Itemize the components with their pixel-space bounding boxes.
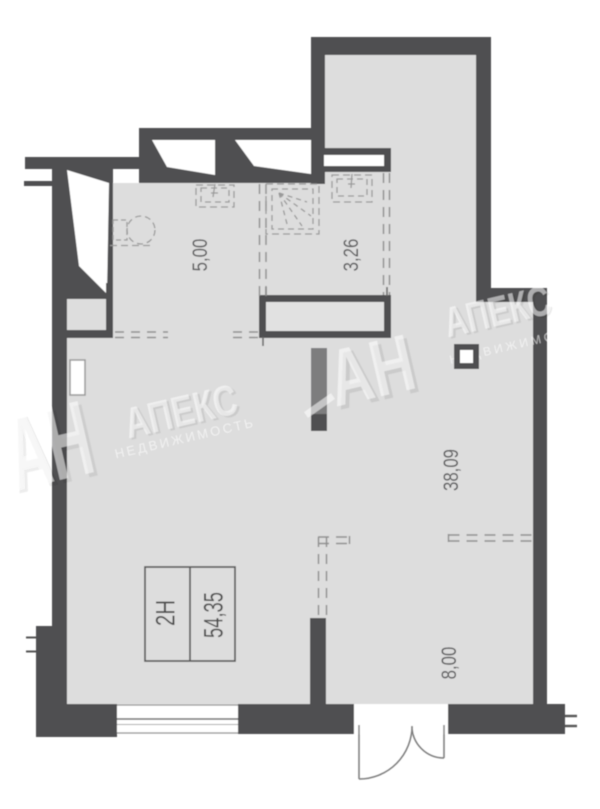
svg-text:54,35: 54,35	[198, 592, 228, 638]
svg-text:8,00: 8,00	[438, 647, 461, 680]
svg-text:5,00: 5,00	[189, 239, 212, 272]
svg-text:2Н: 2Н	[151, 600, 182, 626]
svg-text:3,26: 3,26	[340, 239, 363, 272]
svg-text:38,09: 38,09	[440, 449, 463, 491]
